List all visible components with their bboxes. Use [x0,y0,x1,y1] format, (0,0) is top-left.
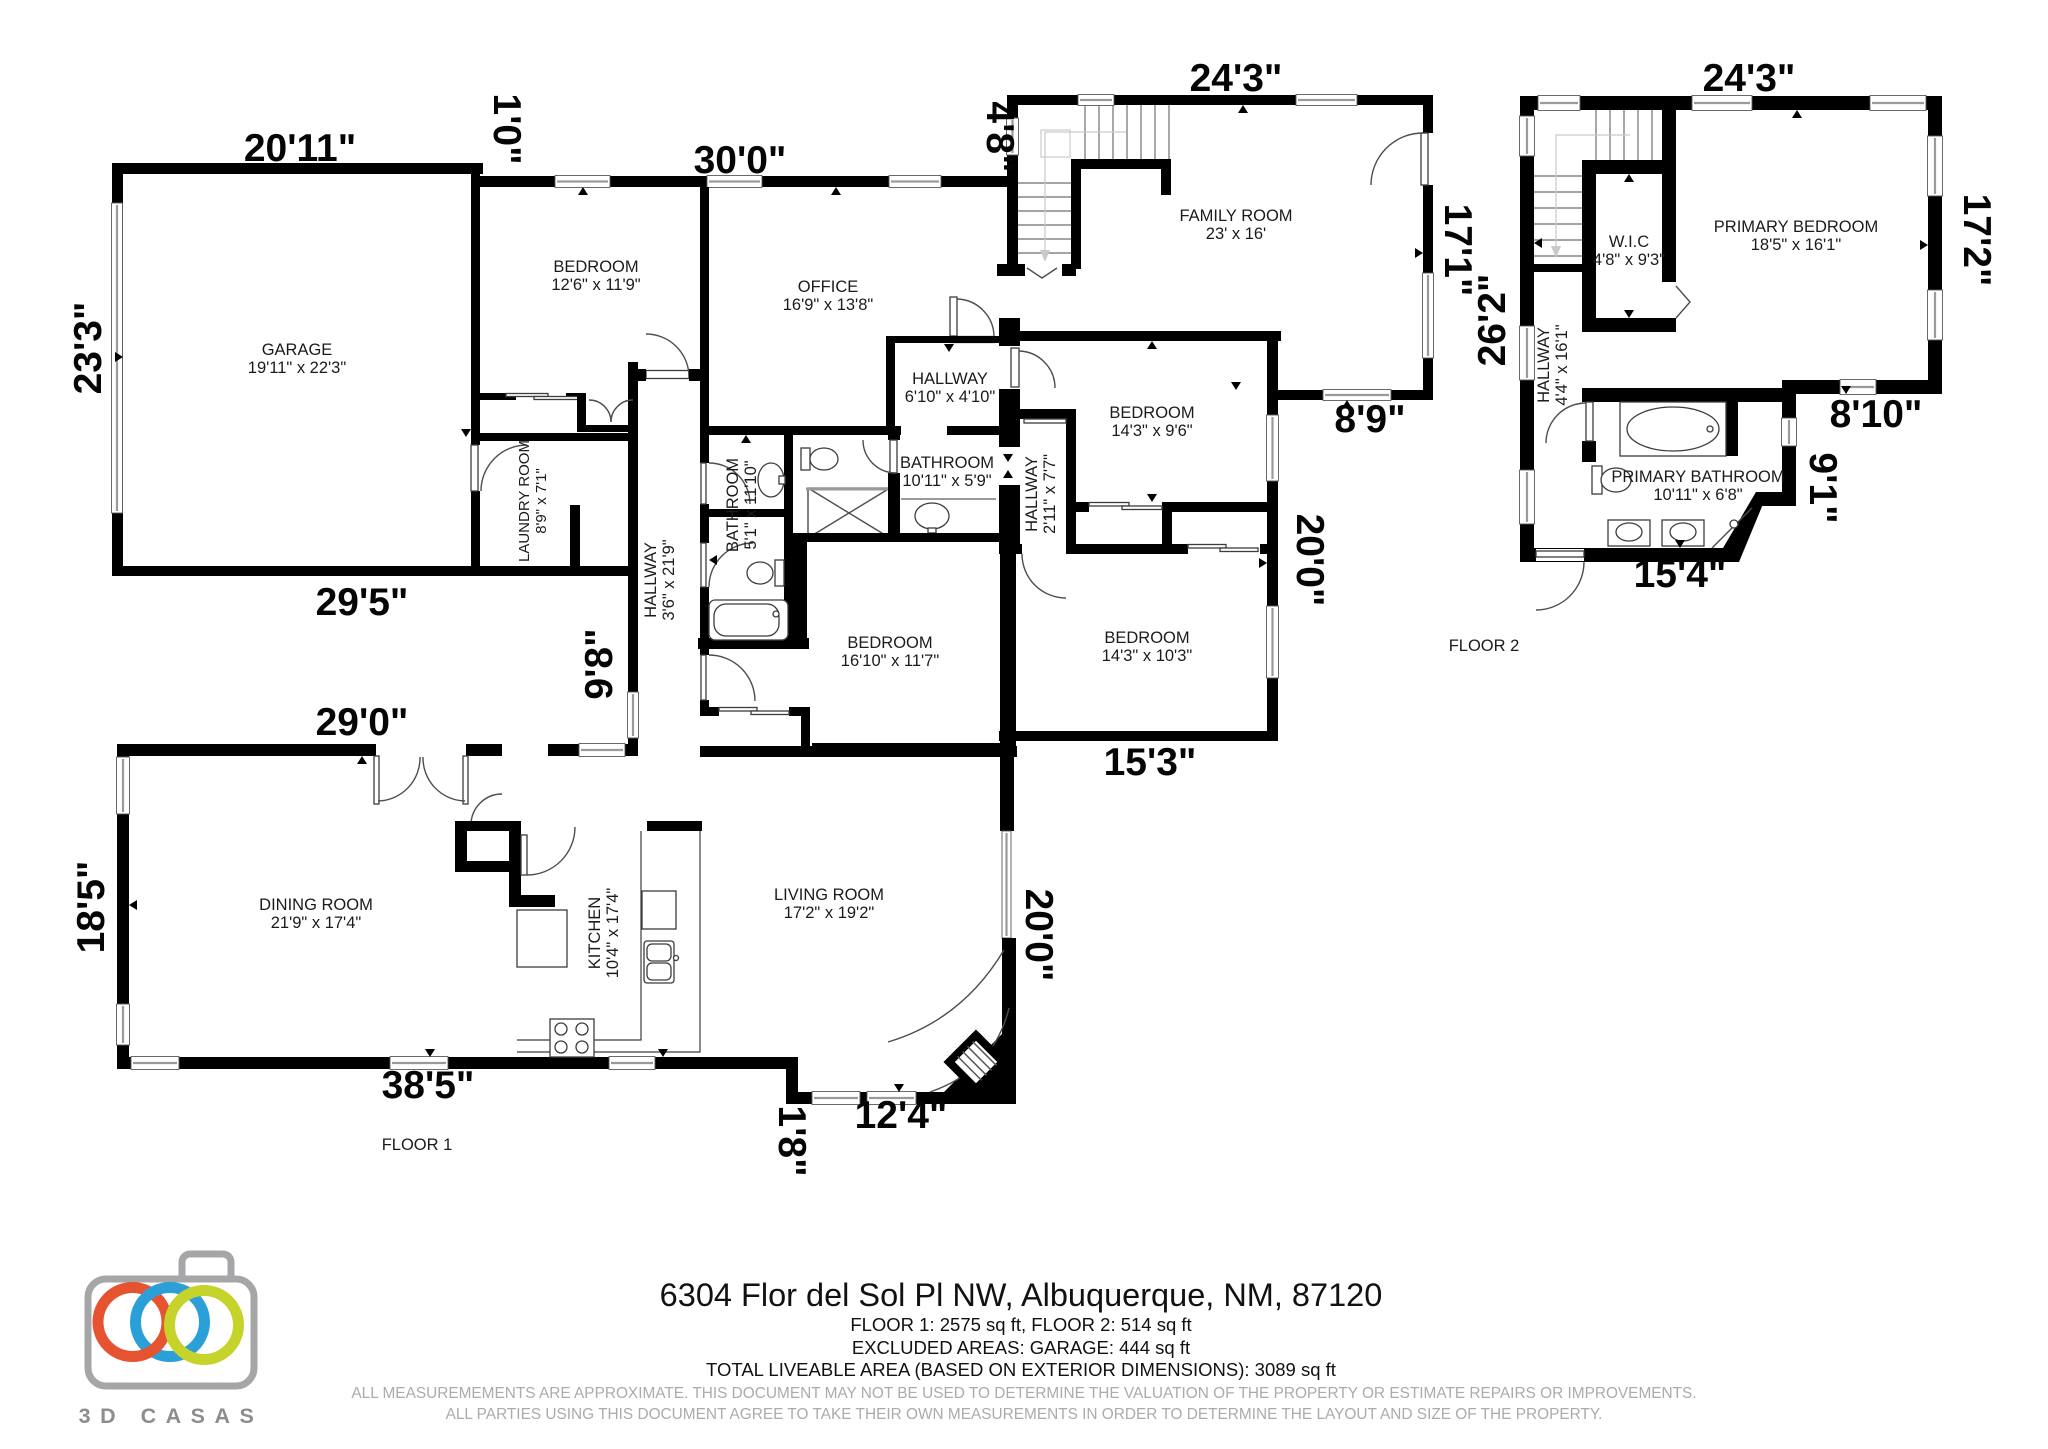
svg-text:HALLWAY: HALLWAY [1023,456,1041,532]
svg-text:14'3" x 9'6": 14'3" x 9'6" [1111,422,1192,440]
svg-text:5'1" x 11'10": 5'1" x 11'10" [742,460,760,549]
svg-text:EXCLUDED AREAS: GARAGE: 444 sq: EXCLUDED AREAS: GARAGE: 444 sq ft [852,1337,1190,1358]
svg-text:20'0": 20'0" [1288,514,1331,607]
svg-text:TOTAL LIVEABLE AREA (BASED ON: TOTAL LIVEABLE AREA (BASED ON EXTERIOR D… [706,1359,1336,1380]
svg-text:12'6" x 11'9": 12'6" x 11'9" [551,276,640,294]
svg-text:9'1": 9'1" [1801,452,1844,523]
svg-text:15'4": 15'4" [1634,553,1727,596]
svg-text:GARAGE: GARAGE [262,341,333,359]
svg-text:24'3": 24'3" [1190,57,1283,100]
svg-text:4'8": 4'8" [978,101,1021,172]
svg-text:FLOOR 1: FLOOR 1 [382,1136,453,1154]
svg-text:23' x 16': 23' x 16' [1206,225,1266,243]
svg-text:BEDROOM: BEDROOM [553,258,638,276]
svg-text:8'9" x 7'1": 8'9" x 7'1" [533,468,550,534]
svg-text:KITCHEN: KITCHEN [586,897,604,969]
svg-text:10'11" x 5'9": 10'11" x 5'9" [902,472,991,490]
svg-text:FAMILY ROOM: FAMILY ROOM [1179,207,1292,225]
svg-text:3D CASAS: 3D CASAS [79,1404,264,1428]
svg-text:LAUNDRY ROOM: LAUNDRY ROOM [516,440,533,562]
svg-text:1'0": 1'0" [485,93,528,164]
svg-text:HALLWAY: HALLWAY [912,370,988,388]
svg-text:38'5": 38'5" [382,1064,475,1107]
svg-text:4'4" x 16'1": 4'4" x 16'1" [1553,324,1571,405]
svg-text:OFFICE: OFFICE [798,278,859,296]
svg-text:15'3": 15'3" [1104,741,1197,784]
svg-text:BEDROOM: BEDROOM [1104,629,1189,647]
svg-text:BEDROOM: BEDROOM [847,634,932,652]
svg-text:18'5" x 16'1": 18'5" x 16'1" [1751,236,1842,254]
svg-text:29'5": 29'5" [316,581,409,624]
svg-text:29'0": 29'0" [316,701,409,744]
svg-text:26'2": 26'2" [1471,274,1514,367]
svg-text:10'4" x 17'4": 10'4" x 17'4" [604,888,622,979]
svg-text:2'11" x 7'7": 2'11" x 7'7" [1041,454,1059,534]
svg-text:BEDROOM: BEDROOM [1109,404,1194,422]
svg-text:BATHROOM: BATHROOM [900,454,994,472]
svg-text:HALLWAY: HALLWAY [642,542,660,618]
svg-text:3'6" x 21'9": 3'6" x 21'9" [660,539,678,620]
svg-text:18'5": 18'5" [70,861,113,954]
svg-text:17'2" x 19'2": 17'2" x 19'2" [784,904,875,922]
svg-text:BATHROOM: BATHROOM [724,458,742,552]
svg-text:16'9" x 13'8": 16'9" x 13'8" [783,296,874,314]
svg-text:ALL MEASUREMEMENTS ARE APPROXI: ALL MEASUREMEMENTS ARE APPROXIMATE. THIS… [351,1385,1696,1402]
svg-text:FLOOR 1: 2575 sq ft, FLOOR 2:: FLOOR 1: 2575 sq ft, FLOOR 2: 514 sq ft [850,1314,1191,1335]
svg-text:FLOOR 2: FLOOR 2 [1449,637,1520,655]
svg-text:24'3": 24'3" [1703,57,1796,100]
svg-text:1'8": 1'8" [770,1105,813,1176]
svg-text:10'11" x 6'8": 10'11" x 6'8" [1653,486,1742,504]
svg-text:21'9" x 17'4": 21'9" x 17'4" [271,914,362,932]
svg-text:20'0": 20'0" [1017,889,1060,982]
svg-text:9'8": 9'8" [578,628,621,699]
svg-text:17'2": 17'2" [1955,194,1998,287]
svg-text:DINING ROOM: DINING ROOM [259,896,373,914]
svg-text:20'11": 20'11" [244,127,356,170]
svg-text:6'10" x 4'10": 6'10" x 4'10" [905,388,996,406]
svg-text:23'3": 23'3" [67,302,110,395]
svg-text:PRIMARY BEDROOM: PRIMARY BEDROOM [1714,218,1878,236]
svg-text:30'0": 30'0" [694,139,787,182]
svg-text:HALLWAY: HALLWAY [1535,327,1553,403]
svg-text:PRIMARY BATHROOM: PRIMARY BATHROOM [1611,468,1784,486]
svg-text:W.I.C: W.I.C [1609,233,1649,251]
svg-text:6304 Flor del Sol Pl NW, Albuq: 6304 Flor del Sol Pl NW, Albuquerque, NM… [660,1277,1383,1313]
svg-text:LIVING ROOM: LIVING ROOM [774,886,884,904]
svg-text:12'4": 12'4" [855,1094,948,1137]
svg-text:8'10": 8'10" [1830,393,1923,436]
svg-text:14'3" x 10'3": 14'3" x 10'3" [1102,647,1193,665]
svg-text:16'10" x 11'7": 16'10" x 11'7" [841,652,940,670]
svg-text:4'8" x 9'3": 4'8" x 9'3" [1593,251,1665,269]
svg-text:19'11" x 22'3": 19'11" x 22'3" [248,359,347,377]
svg-text:ALL PARTIES USING THIS DOCUMEN: ALL PARTIES USING THIS DOCUMENT AGREE TO… [446,1406,1603,1423]
